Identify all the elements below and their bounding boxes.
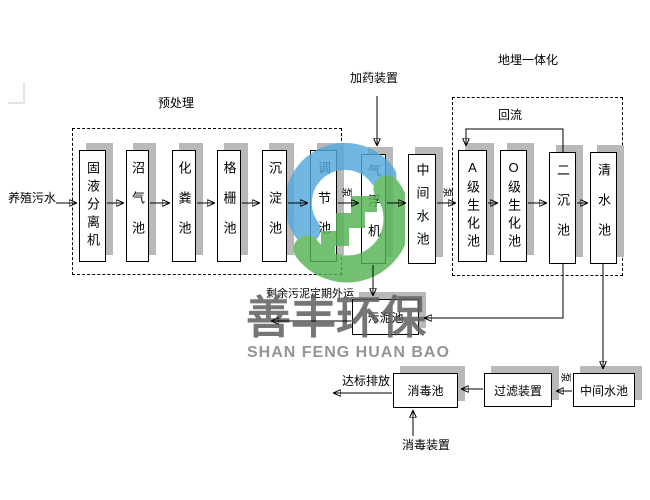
tank-label: 调节池 — [317, 161, 330, 251]
process-flow-diagram: 预处理 地埋一体化 养殖污水 固液分离机 沼气池 化粪池 格栅池 沉淀池 调节池… — [0, 0, 650, 500]
tank-clean-water: 清水池 — [590, 152, 617, 264]
tank-label: 气浮机 — [367, 164, 380, 254]
tank-label: 消毒池 — [407, 382, 443, 399]
tank-biogas: 沼气池 — [126, 150, 149, 262]
tank-label: 中间水池 — [416, 163, 429, 255]
page-corner-mark-horizontal — [8, 102, 25, 104]
page-corner-mark-vertical — [23, 82, 25, 104]
tank-label: 过滤装置 — [494, 382, 542, 399]
tank-solid-liquid-separator: 固液分离机 — [79, 150, 106, 262]
disinfection-device-label: 消毒装置 — [402, 439, 450, 453]
company-name-en-watermark: SHAN FENG HUAN BAO — [247, 344, 450, 362]
tank-intermediate-2: 中间水池 — [573, 373, 635, 407]
tank-label: 污泥池 — [367, 309, 403, 326]
tank-label: 格栅池 — [223, 161, 236, 251]
tank-label: A级生化池 — [466, 160, 479, 252]
tank-septic: 化粪池 — [172, 150, 196, 262]
pump-label-intermediate1-to-abio: 泵 — [440, 186, 453, 199]
pump-label-regulating-to-airflotation: 泵 — [339, 186, 352, 199]
tank-sludge: 污泥池 — [352, 299, 419, 335]
underground-integrated-group-label: 地埋一体化 — [498, 54, 558, 68]
tank-label: 化粪池 — [178, 161, 191, 251]
tank-label: 二沉池 — [556, 163, 569, 253]
tank-label: O级生化池 — [507, 160, 520, 252]
tank-disinfection: 消毒池 — [393, 373, 458, 408]
pump-label-intermediate2-to-filter: 泵 — [558, 371, 571, 384]
pretreatment-group-label: 预处理 — [158, 97, 194, 111]
tank-air-flotation: 气浮机 — [361, 154, 386, 264]
tank-o-level-bio: O级生化池 — [500, 150, 527, 262]
discharge-label: 达标排放 — [342, 375, 390, 389]
tank-a-level-bio: A级生化池 — [458, 150, 487, 262]
tank-label: 清水池 — [597, 163, 610, 253]
tank-sedimentation: 沉淀池 — [262, 150, 287, 262]
tank-grid: 格栅池 — [217, 150, 241, 262]
input-wastewater-label: 养殖污水 — [8, 192, 56, 206]
sludge-removal-label: 剩余污泥定期外运 — [266, 288, 354, 301]
tank-label: 沉淀池 — [268, 161, 281, 251]
tank-intermediate-1: 中间水池 — [408, 154, 436, 264]
dosing-device-label: 加药装置 — [350, 72, 398, 86]
tank-label: 固液分离机 — [86, 161, 99, 251]
tank-secondary-sedimentation: 二沉池 — [549, 152, 576, 264]
reflux-label: 回流 — [498, 109, 522, 123]
tank-label: 中间水池 — [580, 382, 628, 399]
pretreatment-group-frame — [72, 128, 342, 275]
tank-regulating: 调节池 — [310, 150, 337, 262]
tank-filter-device: 过滤装置 — [484, 373, 552, 407]
tank-label: 沼气池 — [131, 161, 144, 251]
